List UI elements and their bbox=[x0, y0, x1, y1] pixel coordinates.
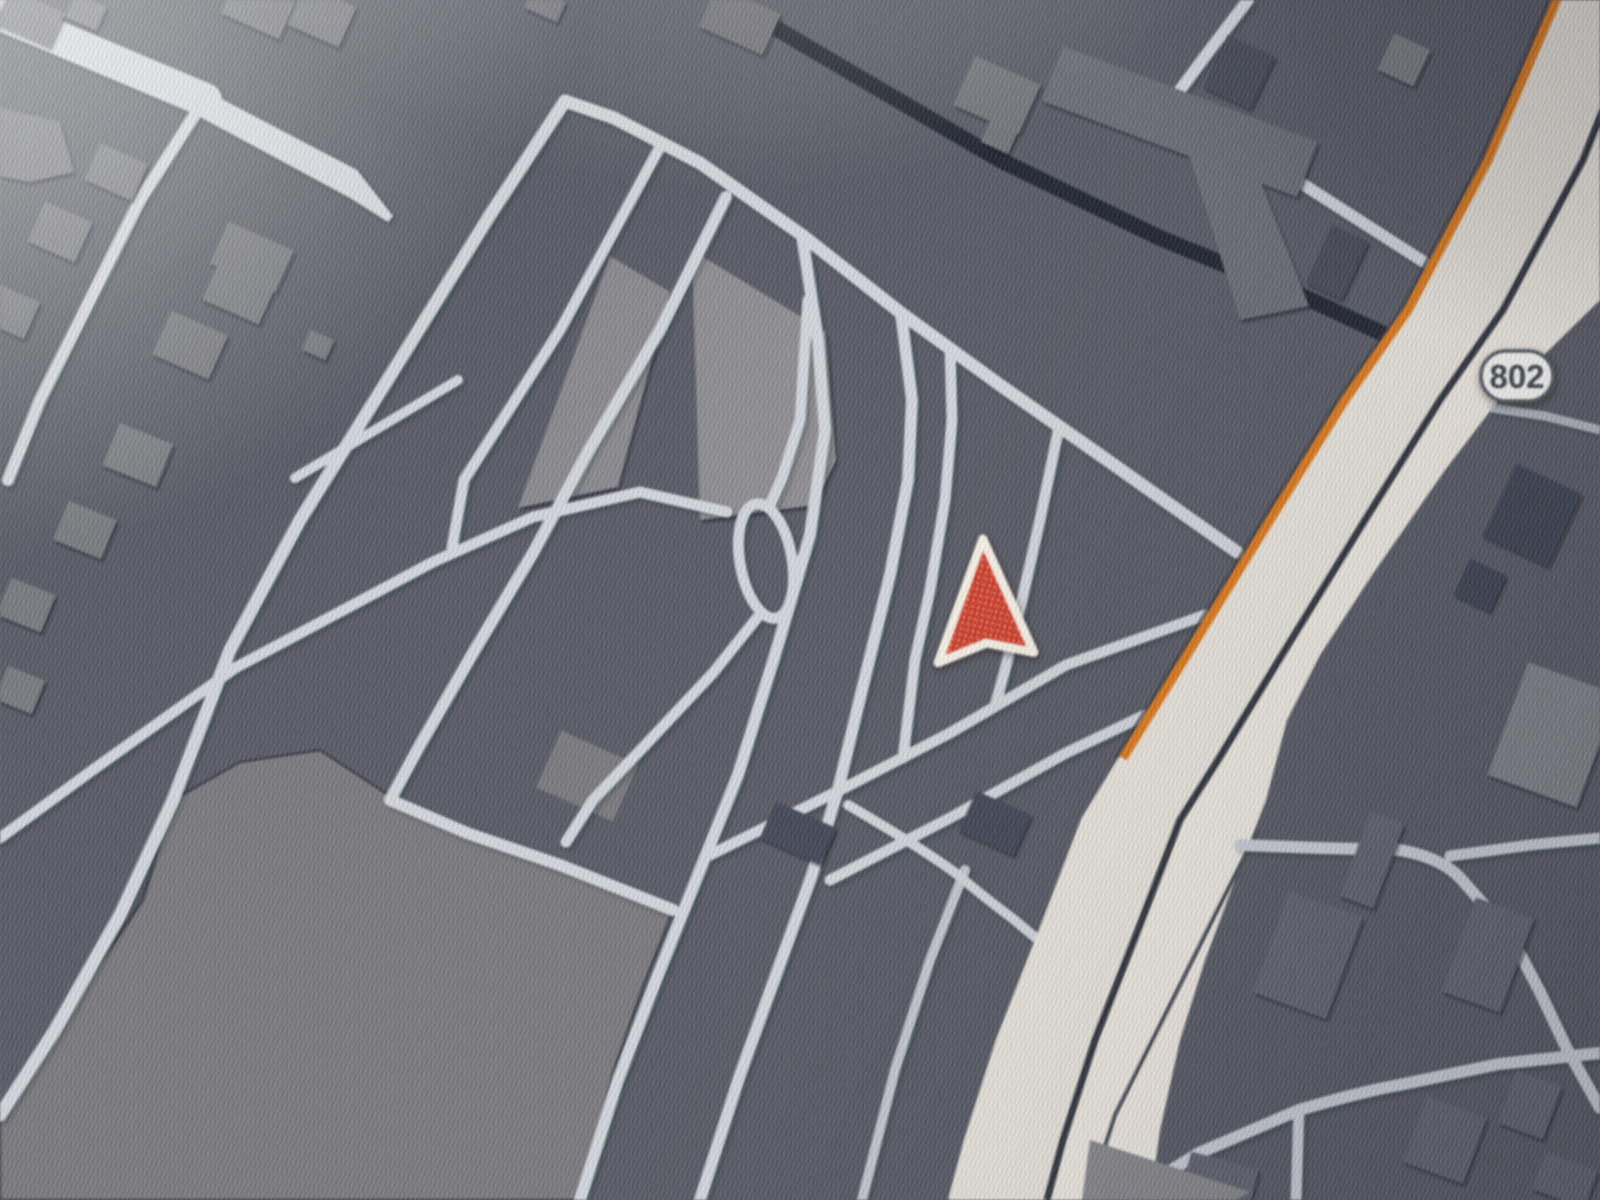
svg-text:802: 802 bbox=[1489, 358, 1544, 395]
